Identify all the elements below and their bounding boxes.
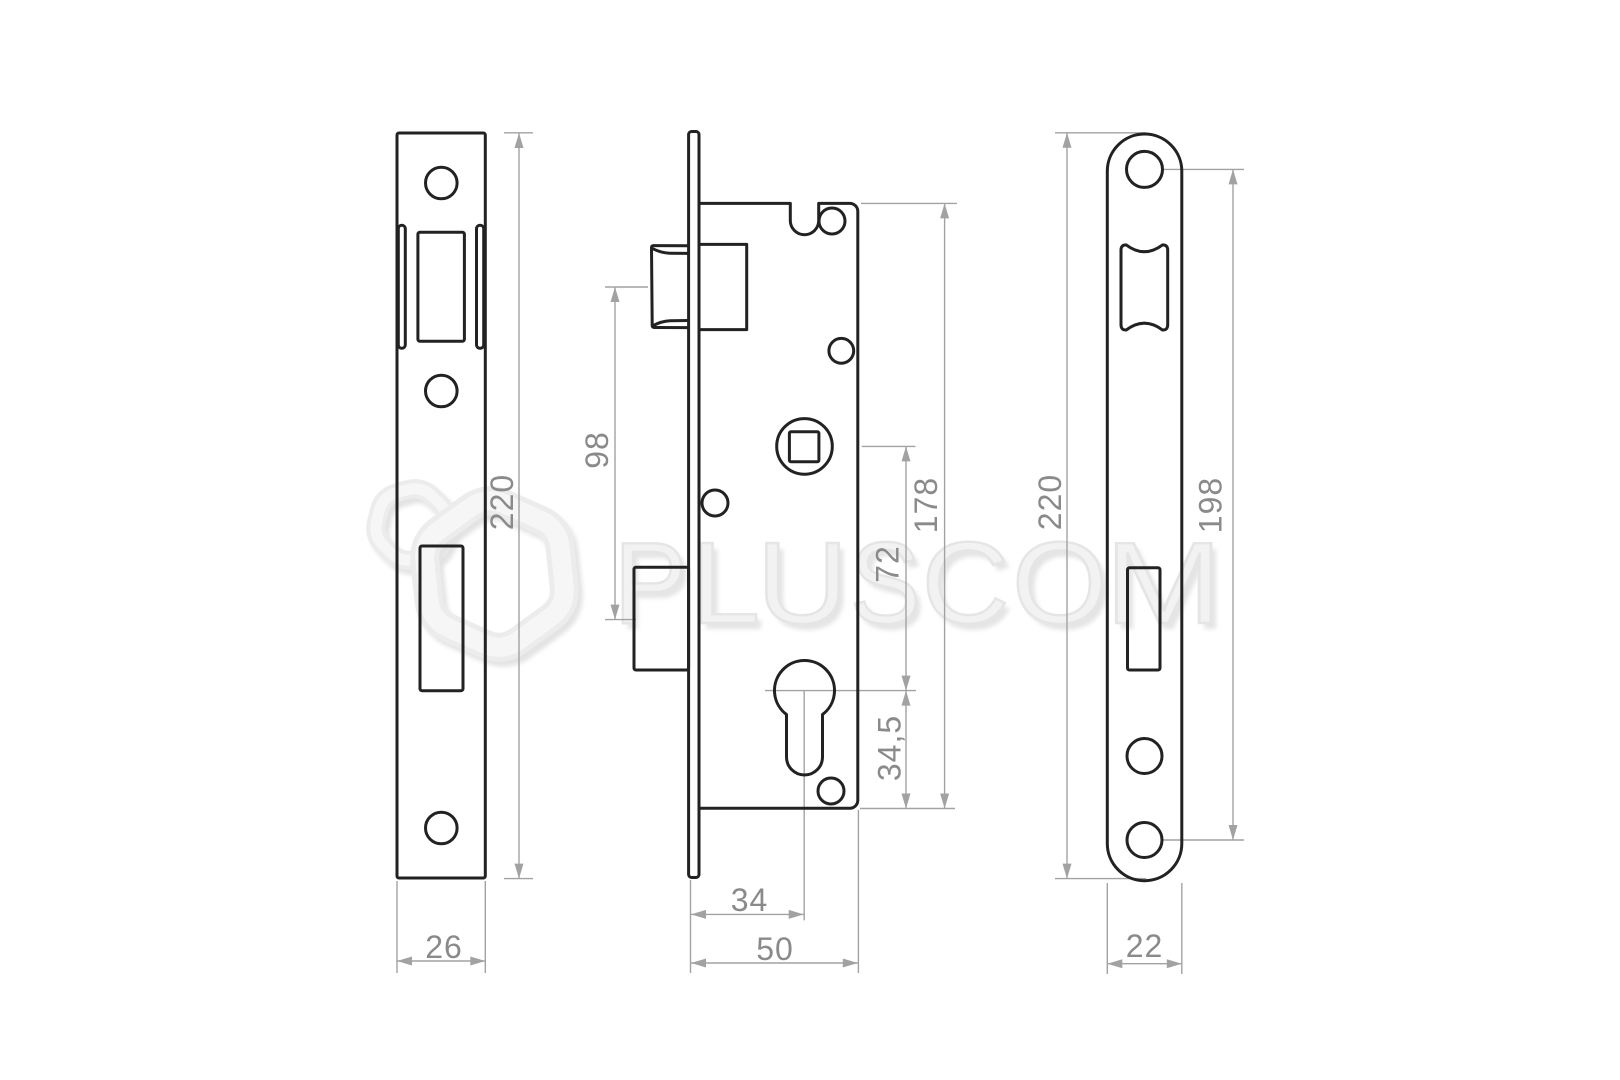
svg-text:198: 198: [1193, 477, 1229, 533]
svg-text:34,5: 34,5: [872, 715, 908, 781]
svg-text:C: C: [922, 518, 1010, 648]
svg-text:P: P: [614, 518, 687, 648]
svg-text:98: 98: [579, 431, 615, 469]
svg-text:34: 34: [731, 882, 769, 918]
svg-text:220: 220: [484, 474, 520, 530]
svg-text:L: L: [691, 518, 761, 648]
svg-text:22: 22: [1126, 928, 1164, 964]
svg-text:U: U: [757, 518, 849, 648]
svg-text:M: M: [1105, 518, 1223, 648]
svg-text:50: 50: [756, 931, 794, 967]
svg-text:220: 220: [1032, 474, 1068, 530]
svg-text:26: 26: [425, 929, 463, 965]
svg-text:178: 178: [908, 477, 944, 533]
svg-text:O: O: [1012, 518, 1108, 648]
svg-text:72: 72: [870, 545, 906, 583]
